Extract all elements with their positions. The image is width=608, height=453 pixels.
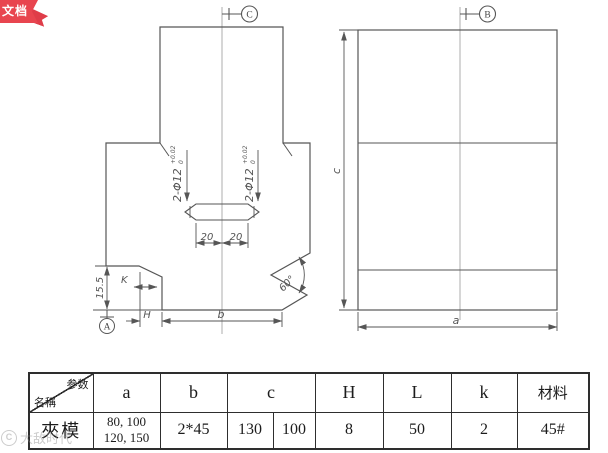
hole-tol-right-lower: 0 xyxy=(250,160,257,164)
table-corner-cell: 参数 名稱 xyxy=(29,373,93,412)
row-L-value: 50 xyxy=(383,412,451,449)
table-header-row: 参数 名稱 a b c H L k 材料 xyxy=(29,373,589,412)
table-data-row: 夾模 80, 100 120, 150 2*45 130 100 8 50 2 … xyxy=(29,412,589,449)
datum-b-label: B xyxy=(484,11,490,21)
dim-a-label: a xyxy=(453,314,460,327)
hole-tol-right-upper: +0.02 xyxy=(242,145,249,164)
engineering-drawing: C 2-Φ12 +0.02 0 2-Φ12 +0.02 0 20 20 15.5… xyxy=(0,0,608,368)
row-H-value: 8 xyxy=(315,412,383,449)
table-header-H: H xyxy=(315,373,383,412)
dim-b-label: b xyxy=(218,308,225,321)
dim-20-right-label: 20 xyxy=(230,232,243,243)
row-a-line2: 120, 150 xyxy=(94,430,160,446)
drawing-svg: C 2-Φ12 +0.02 0 2-Φ12 +0.02 0 20 20 15.5… xyxy=(0,0,608,368)
dim-c-label: c xyxy=(330,168,343,174)
row-a-value: 80, 100 120, 150 xyxy=(93,412,160,449)
relief-chamfers xyxy=(160,143,292,156)
corner-label-param: 参数 xyxy=(67,376,89,392)
parameter-table: 参数 名稱 a b c H L k 材料 夾模 80, 100 120, 150… xyxy=(28,372,590,450)
front-outline xyxy=(106,27,310,310)
watermark-logo-icon: C xyxy=(1,430,17,446)
row-c1-value: 130 xyxy=(227,412,273,449)
table-header-L: L xyxy=(383,373,451,412)
datum-c-label: C xyxy=(246,11,252,21)
hole-note-left: 2-Φ12 xyxy=(171,168,184,202)
hole-tol-left-upper: +0.02 xyxy=(170,145,177,164)
row-c2-value: 100 xyxy=(273,412,315,449)
side-inner-lines xyxy=(358,143,557,270)
table-header-a: a xyxy=(93,373,160,412)
table-header-k: k xyxy=(451,373,517,412)
hole-note-right: 2-Φ12 xyxy=(243,168,256,202)
row-material-value: 45# xyxy=(517,412,589,449)
table-header-b: b xyxy=(160,373,227,412)
angle-arc xyxy=(299,257,304,293)
watermark: C 大敌时代 xyxy=(1,428,72,447)
dim-k-label: K xyxy=(121,275,129,286)
datum-a-label: A xyxy=(104,323,111,333)
corner-label-name: 名稱 xyxy=(34,394,56,410)
row-b-value: 2*45 xyxy=(160,412,227,449)
table-header-material: 材料 xyxy=(517,373,589,412)
dim-15-5-label: 15.5 xyxy=(95,277,106,299)
row-a-line1: 80, 100 xyxy=(94,414,160,430)
angle-label: 60° xyxy=(277,274,297,294)
dim-20-left-label: 20 xyxy=(201,232,214,243)
table-header-c: c xyxy=(227,373,315,412)
side-view xyxy=(358,7,557,320)
dim-h-label: H xyxy=(143,310,151,321)
badge-label: 文档 xyxy=(2,4,28,18)
side-outline xyxy=(358,30,557,310)
row-k-value: 2 xyxy=(451,412,517,449)
hole-tol-left-lower: 0 xyxy=(178,160,185,164)
watermark-text: 大敌时代 xyxy=(20,428,72,447)
